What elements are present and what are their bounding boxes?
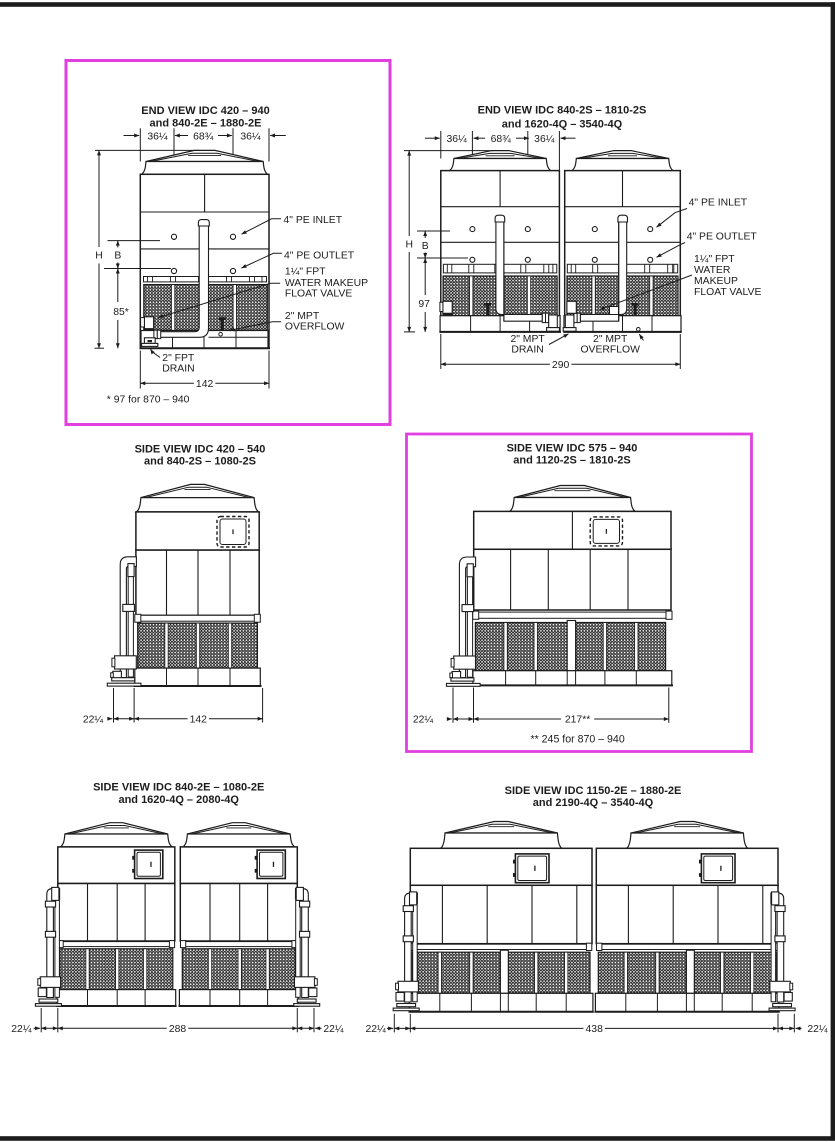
svg-text:438: 438	[586, 1024, 604, 1035]
svg-text:22¼: 22¼	[83, 713, 104, 725]
svg-text:2" MPT: 2" MPT	[285, 311, 320, 322]
svg-text:1¼" FPT: 1¼" FPT	[285, 266, 326, 278]
svg-text:SIDE VIEW IDC 840-2E – 1080-2E: SIDE VIEW IDC 840-2E – 1080-2E	[93, 782, 264, 794]
svg-text:SIDE VIEW IDC 1150-2E – 1880-2: SIDE VIEW IDC 1150-2E – 1880-2E	[505, 785, 682, 797]
svg-text:4" PE INLET: 4" PE INLET	[689, 198, 748, 209]
svg-text:END VIEW IDC 840-2S – 1810-2S: END VIEW IDC 840-2S – 1810-2S	[478, 104, 647, 116]
svg-text:and 1620-4Q – 2080-4Q: and 1620-4Q – 2080-4Q	[118, 794, 239, 806]
svg-text:22¼: 22¼	[413, 714, 434, 726]
svg-text:and 1620-4Q – 3540-4Q: and 1620-4Q – 3540-4Q	[502, 118, 623, 130]
svg-text:and 840-2E – 1880-2E: and 840-2E – 1880-2E	[150, 118, 262, 130]
svg-text:68¾: 68¾	[491, 134, 512, 145]
svg-text:2" MPT: 2" MPT	[593, 334, 628, 345]
svg-text:SIDE VIEW IDC 575 – 940: SIDE VIEW IDC 575 – 940	[507, 443, 638, 455]
svg-text:1¼" FPT: 1¼" FPT	[694, 253, 735, 265]
svg-text:WATER: WATER	[694, 265, 731, 276]
svg-text:H: H	[95, 251, 103, 262]
svg-text:22¼: 22¼	[365, 1023, 386, 1035]
svg-text:B: B	[114, 251, 121, 262]
svg-text:217**: 217**	[565, 715, 590, 726]
svg-text:22¼: 22¼	[11, 1023, 32, 1035]
svg-text:4" PE OUTLET: 4" PE OUTLET	[687, 232, 758, 243]
svg-text:142: 142	[190, 714, 208, 725]
svg-text:85*: 85*	[113, 307, 129, 318]
svg-text:and 2190-4Q – 3540-4Q: and 2190-4Q – 3540-4Q	[533, 797, 654, 809]
svg-text:36¼: 36¼	[240, 130, 261, 142]
svg-text:22¼: 22¼	[323, 1023, 344, 1035]
svg-text:36¼: 36¼	[534, 133, 555, 145]
svg-text:290: 290	[552, 360, 570, 371]
svg-text:END VIEW IDC 420 – 940: END VIEW IDC 420 – 940	[141, 105, 269, 117]
svg-text:4" PE OUTLET: 4" PE OUTLET	[284, 250, 355, 261]
svg-text:OVERFLOW: OVERFLOW	[580, 344, 640, 355]
svg-text:DRAIN: DRAIN	[511, 344, 543, 355]
svg-text:2" MPT: 2" MPT	[510, 334, 545, 345]
svg-text:DRAIN: DRAIN	[162, 363, 194, 374]
svg-text:68¾: 68¾	[193, 131, 214, 142]
svg-text:H: H	[405, 239, 413, 250]
svg-text:4" PE INLET: 4" PE INLET	[284, 215, 343, 226]
svg-text:142: 142	[196, 379, 214, 390]
svg-text:MAKEUP: MAKEUP	[694, 276, 738, 287]
svg-text:SIDE VIEW IDC 420 – 540: SIDE VIEW IDC 420 – 540	[135, 443, 266, 455]
svg-text:** 245 for 870 – 940: ** 245 for 870 – 940	[530, 734, 624, 746]
svg-text:22¼: 22¼	[807, 1023, 828, 1035]
svg-text:FLOAT VALVE: FLOAT VALVE	[694, 287, 761, 298]
svg-text:OVERFLOW: OVERFLOW	[285, 321, 345, 332]
svg-text:B: B	[422, 241, 429, 252]
svg-text:288: 288	[169, 1024, 187, 1035]
svg-text:36¼: 36¼	[147, 130, 168, 142]
svg-text:* 97 for 870 – 940: * 97 for 870 – 940	[107, 394, 190, 405]
svg-text:WATER MAKEUP: WATER MAKEUP	[285, 278, 368, 289]
svg-text:and 1120-2S – 1810-2S: and 1120-2S – 1810-2S	[513, 455, 630, 467]
svg-text:36¼: 36¼	[446, 133, 467, 145]
svg-text:97: 97	[418, 299, 430, 310]
svg-text:and 840-2S – 1080-2S: and 840-2S – 1080-2S	[144, 456, 256, 468]
svg-text:FLOAT VALVE: FLOAT VALVE	[285, 289, 352, 300]
